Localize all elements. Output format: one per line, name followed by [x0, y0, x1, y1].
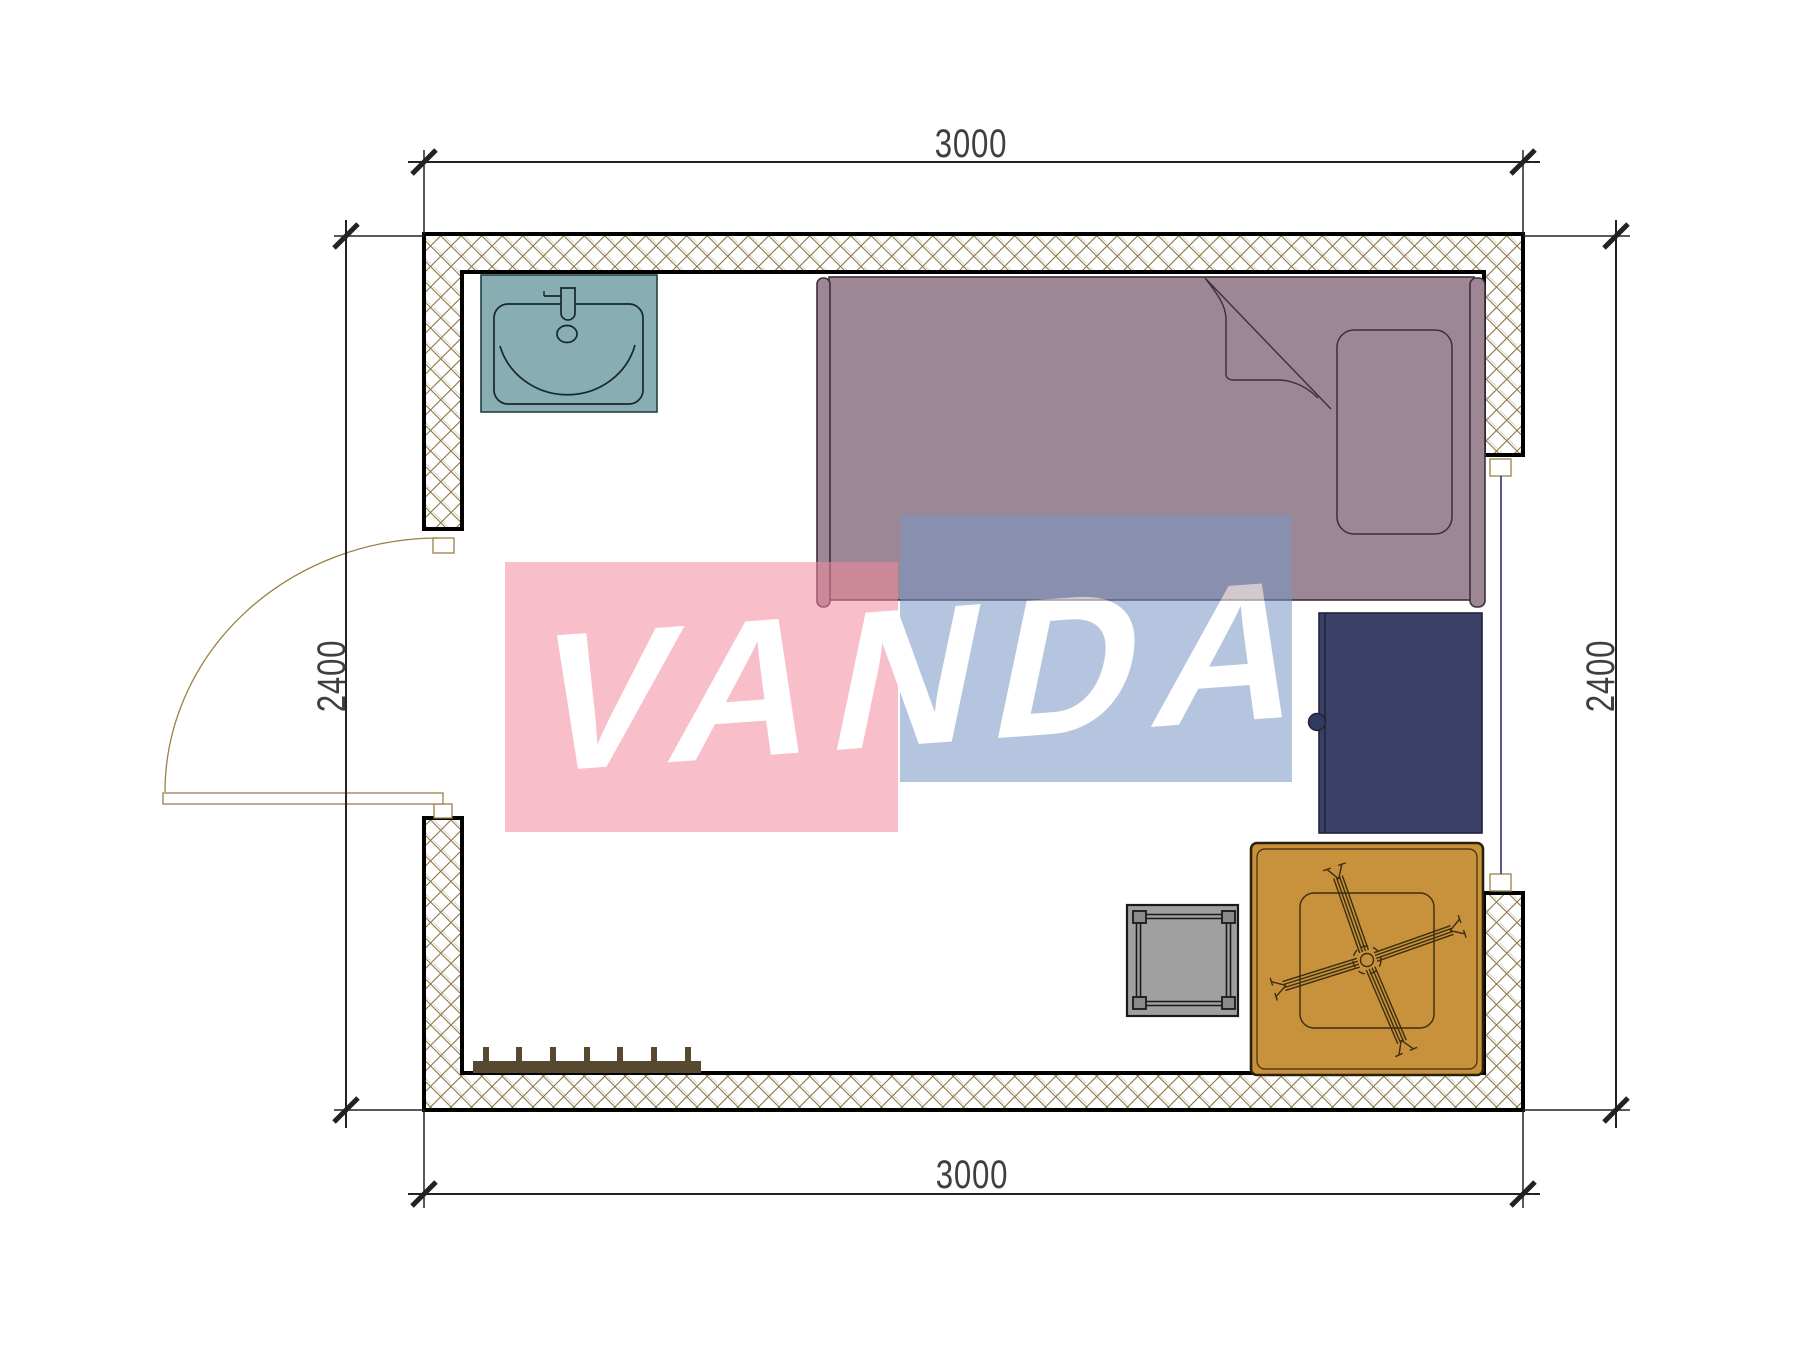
svg-text:2400: 2400	[309, 640, 354, 713]
svg-text:3000: 3000	[936, 1152, 1009, 1197]
svg-text:3000: 3000	[935, 121, 1008, 166]
svg-text:2400: 2400	[1578, 640, 1623, 713]
